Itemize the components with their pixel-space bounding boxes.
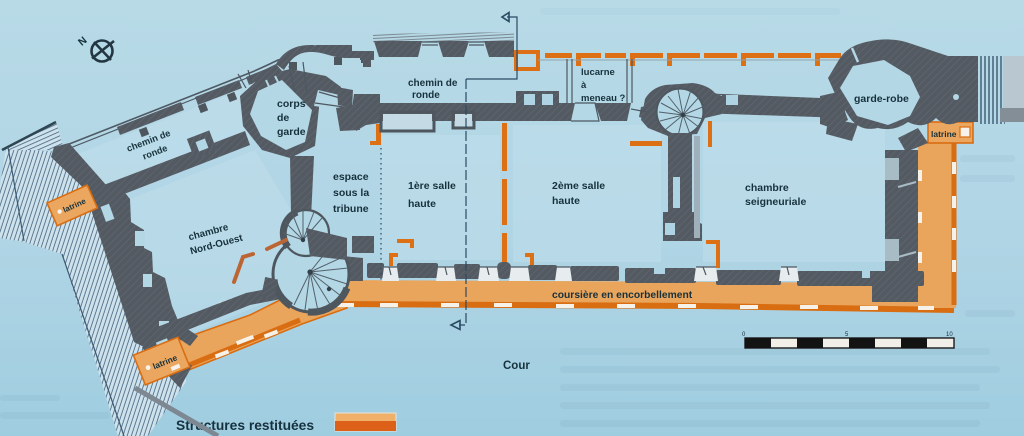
svg-text:10: 10 bbox=[946, 332, 953, 338]
svg-text:2ème salle: 2ème salle bbox=[552, 180, 605, 192]
svg-text:latrine: latrine bbox=[931, 129, 957, 139]
svg-text:1ère salle: 1ère salle bbox=[408, 180, 456, 192]
svg-text:Cour: Cour bbox=[503, 360, 530, 372]
svg-text:ronde: ronde bbox=[412, 90, 440, 101]
svg-text:chambre: chambre bbox=[745, 182, 789, 194]
svg-text:à: à bbox=[581, 80, 587, 91]
svg-text:lucarne: lucarne bbox=[581, 67, 615, 78]
svg-text:haute: haute bbox=[552, 195, 580, 207]
svg-text:garde-robe: garde-robe bbox=[854, 93, 909, 105]
svg-text:seigneuriale: seigneuriale bbox=[745, 196, 806, 208]
svg-text:espace: espace bbox=[333, 171, 369, 183]
svg-text:haute: haute bbox=[408, 198, 436, 210]
svg-text:de: de bbox=[277, 112, 289, 124]
svg-text:meneau ?: meneau ? bbox=[581, 93, 626, 104]
svg-text:coursière en encorbellement: coursière en encorbellement bbox=[552, 290, 693, 301]
svg-text:garde: garde bbox=[277, 126, 306, 138]
svg-text:corps: corps bbox=[277, 98, 306, 110]
svg-text:sous la: sous la bbox=[333, 187, 369, 199]
svg-text:tribune: tribune bbox=[333, 203, 369, 215]
svg-text:chemin de: chemin de bbox=[408, 78, 458, 89]
